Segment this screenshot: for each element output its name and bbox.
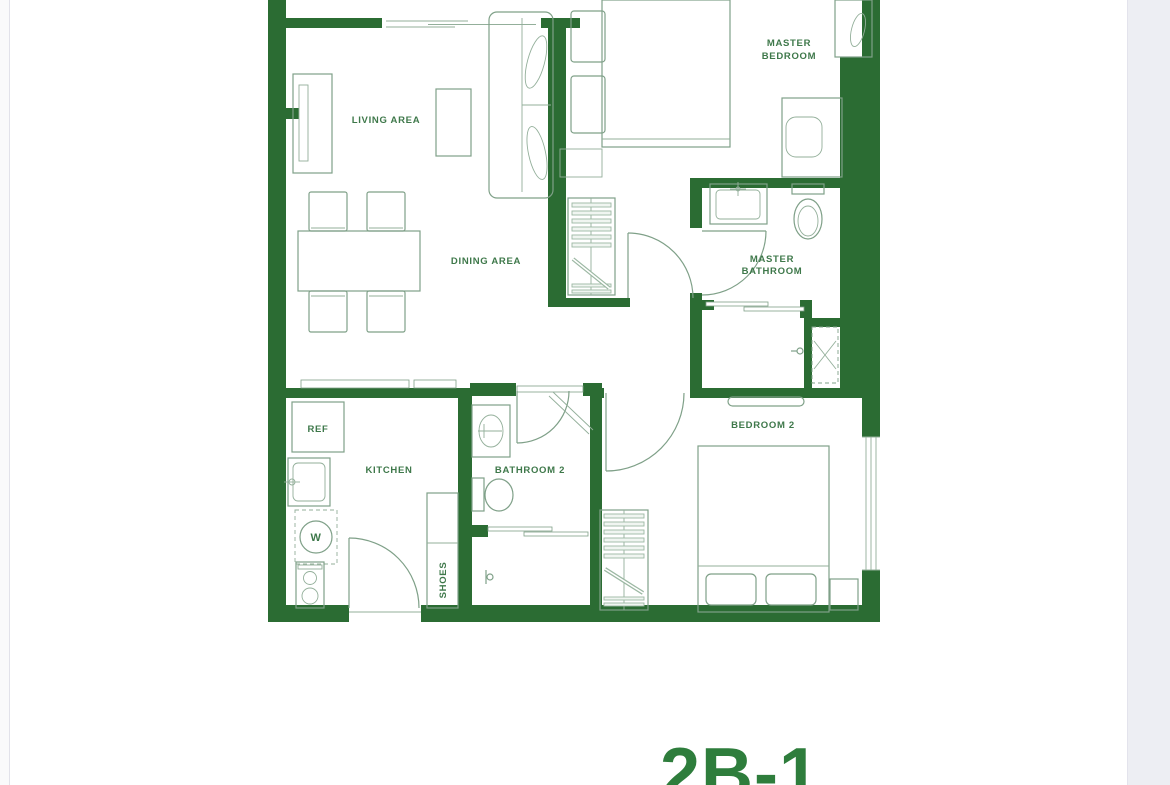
tv-set [299,85,308,161]
living-window-band [382,18,541,28]
living-area [293,12,553,198]
bathroom2-label: BATHROOM 2 [495,465,565,476]
slat [604,514,644,518]
sofa-pillow-1 [521,34,551,91]
master-desk [782,98,842,177]
wall-shaft-left [804,318,812,390]
bedroom2-door-swing [606,393,684,471]
dining-table [298,231,420,291]
ac-ledge-shaft [812,327,838,383]
kitchen-ledge-2 [414,380,456,388]
storage-door-knob-circle [487,574,493,580]
bedroom2-wardrobe [600,510,648,610]
dining-area [298,192,456,388]
kitchen-label: KITCHEN [365,465,412,476]
living-area-label: LIVING AREA [352,115,421,126]
bathroom2-door-swing [517,391,569,443]
screenshot-root: { "page": { "background": "#ffffff" }, "… [0,0,1170,785]
wall-right-bed2-lower [862,570,880,622]
washer-label: W [310,532,321,544]
floor-plan: LIVING AREA DINING AREA KITCHEN BATHROOM… [0,0,1170,785]
stove [296,562,324,608]
stove-burner-2 [302,588,318,604]
slat [604,538,644,542]
wall-masterbath-west [690,178,702,228]
bed-bench [560,149,602,177]
wall-right-bed2-upper [862,390,880,437]
bath2-toilet-bowl [485,479,513,511]
master-bed [602,0,730,147]
storage-slider-panel-2 [524,532,588,536]
wall-kitchen-east [458,388,472,605]
master-suite-door-swing [628,233,693,298]
sofa-pillow-2 [523,125,551,181]
kitchen-ledge-1 [301,380,409,388]
entry-door-swing [349,538,419,608]
master-wardrobe [568,198,615,295]
slat [572,227,611,231]
wall-foyer-south [558,298,630,307]
slat [572,290,611,293]
slat [572,219,611,223]
wall-closet-west [690,293,702,390]
wall-bath2-top-right [583,383,602,396]
bedroom2-pillow-1 [706,574,756,605]
closet-door-knob-circle [797,348,803,354]
bedroom2-ac-unit [728,397,804,406]
refrigerator-label: REF [307,424,328,435]
dining-chair-back-lines [311,228,403,296]
bath2-faucet [478,424,502,438]
bedroom2-pillow-2 [766,574,816,605]
closet-slider-panel-2 [744,307,804,311]
slat [572,211,611,215]
master-desk-chair [786,117,822,157]
nightstand-2 [571,76,605,133]
wall-bath2-top-left [470,383,516,396]
coffee-table [436,89,471,156]
entry-threshold [349,605,421,622]
dining-chair-2 [367,192,405,231]
slat [572,235,611,239]
master-bathroom-label-line1: MASTER [750,254,794,265]
wall-top-a [286,18,383,28]
slat [604,546,644,550]
master-wardrobe-slats [572,203,611,293]
mbath-toilet-seat [798,206,818,236]
slat [604,554,644,558]
slat [604,597,644,600]
bath2-door-head [517,386,583,392]
slat [604,603,644,606]
bedroom2-door [606,393,684,471]
master-bedroom-label-line1: MASTER [767,38,811,49]
master-suite-door [628,233,693,298]
shoe-cabinet-label: SHOES [438,562,449,599]
slat [604,522,644,526]
bathroom2-folding-leaf [549,392,593,434]
wall-bath2-bottom-pier [472,525,488,537]
wall-shaft-top [804,318,840,327]
mbath-toilet [792,184,824,239]
closet-slider-panel-1 [706,302,768,306]
storage-slider-panel-1 [488,527,552,531]
bathroom2-door [517,391,593,443]
stove-burner-1 [304,572,317,585]
sofa [489,12,553,198]
master-bedroom-label-line2: BEDROOM [762,51,817,62]
wall-living-master-partition [548,28,566,307]
slat [604,530,644,534]
wall-left-outer [268,0,286,622]
wall-right-thick [840,57,880,390]
bedroom2 [600,397,858,612]
master-bedroom [560,0,872,177]
bedroom2-bed [698,446,829,612]
slat [572,243,611,247]
closet-sliding-door [706,302,804,354]
slat [572,203,611,207]
bathroom2 [472,405,513,511]
bath2-toilet [472,478,513,511]
dining-chair-4 [367,291,405,332]
wall-kitchen-top [286,388,458,398]
entry-door [349,538,419,608]
dining-area-label: DINING AREA [451,256,521,267]
bedroom2-label: BEDROOM 2 [731,420,795,431]
master-bathroom-label-line2: BATHROOM [742,266,803,277]
kitchen-sink [284,458,330,506]
bath2-toilet-tank [472,478,484,511]
stove-knobs [298,565,322,569]
dining-chair-3 [309,291,347,332]
storage-sliding-door [486,527,588,584]
bath2-vanity [472,405,510,457]
dining-chair-1 [309,192,347,231]
wall-top-b [541,18,580,28]
unit-type-title: 2B-1 [660,738,920,785]
